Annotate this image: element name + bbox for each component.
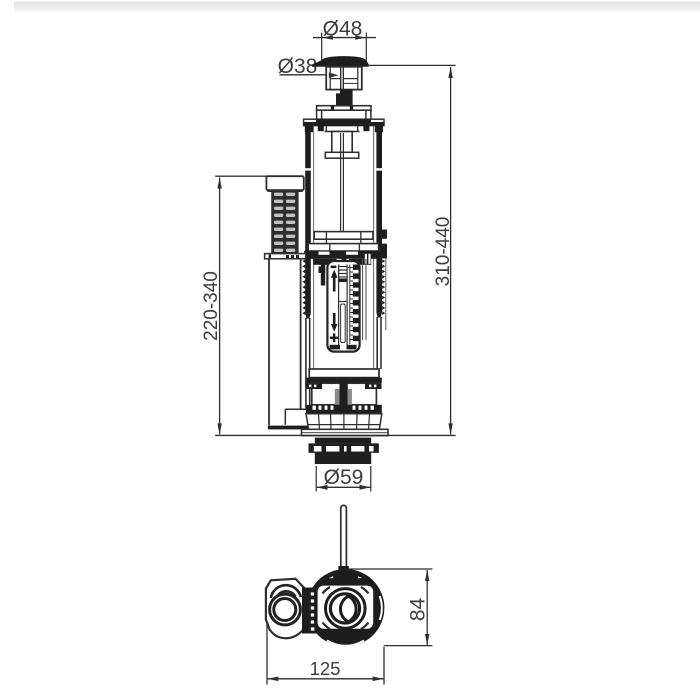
svg-text:310-440: 310-440 bbox=[433, 217, 454, 287]
svg-text:Ø59: Ø59 bbox=[324, 466, 364, 489]
svg-text:125: 125 bbox=[310, 658, 341, 679]
svg-text:84: 84 bbox=[407, 598, 430, 622]
svg-text:220-340: 220-340 bbox=[201, 271, 222, 341]
